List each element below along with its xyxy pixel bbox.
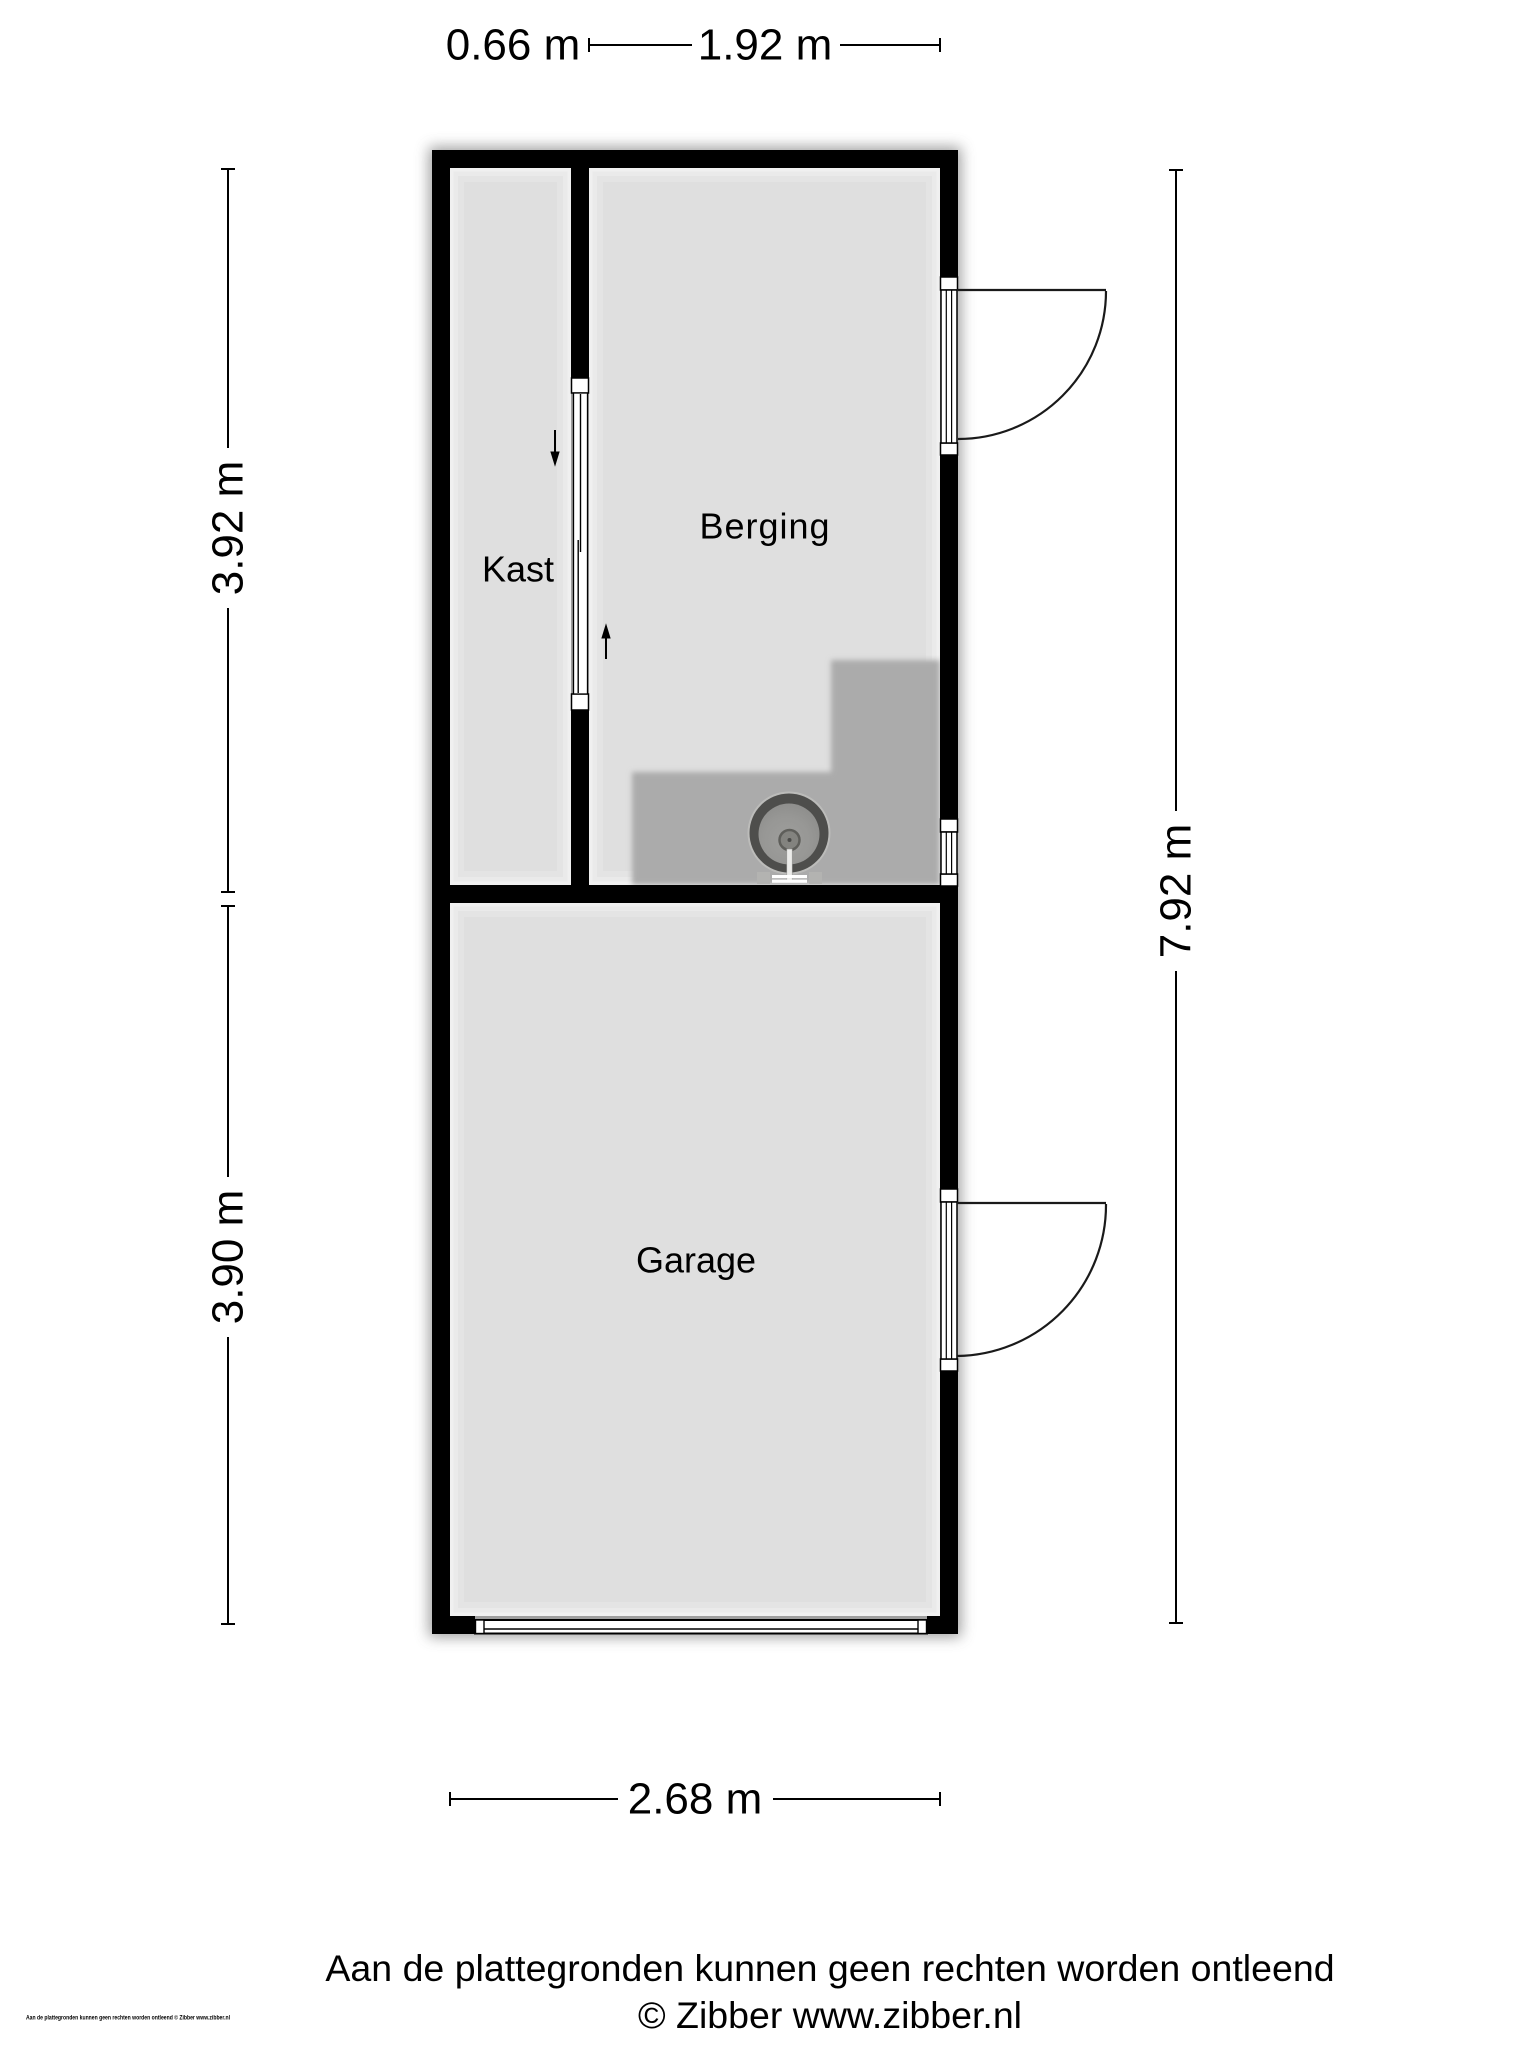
svg-text:Berging: Berging <box>699 506 830 547</box>
svg-text:3.92 m: 3.92 m <box>204 461 253 596</box>
svg-text:Kast: Kast <box>482 549 554 590</box>
svg-text:Aan de plattegronden kunnen ge: Aan de plattegronden kunnen geen rechten… <box>325 1947 1334 1989</box>
svg-text:7.92 m: 7.92 m <box>1152 824 1201 959</box>
svg-text:1.92 m: 1.92 m <box>698 21 833 70</box>
svg-text:3.90 m: 3.90 m <box>204 1190 253 1325</box>
svg-text:© Zibber www.zibber.nl: © Zibber www.zibber.nl <box>638 1994 1022 2036</box>
svg-text:Aan de plattegronden kunnen ge: Aan de plattegronden kunnen geen rechten… <box>26 2014 230 2022</box>
svg-text:2.68 m: 2.68 m <box>628 1775 763 1824</box>
svg-text:Garage: Garage <box>636 1240 756 1281</box>
svg-text:0.66 m: 0.66 m <box>446 21 581 70</box>
